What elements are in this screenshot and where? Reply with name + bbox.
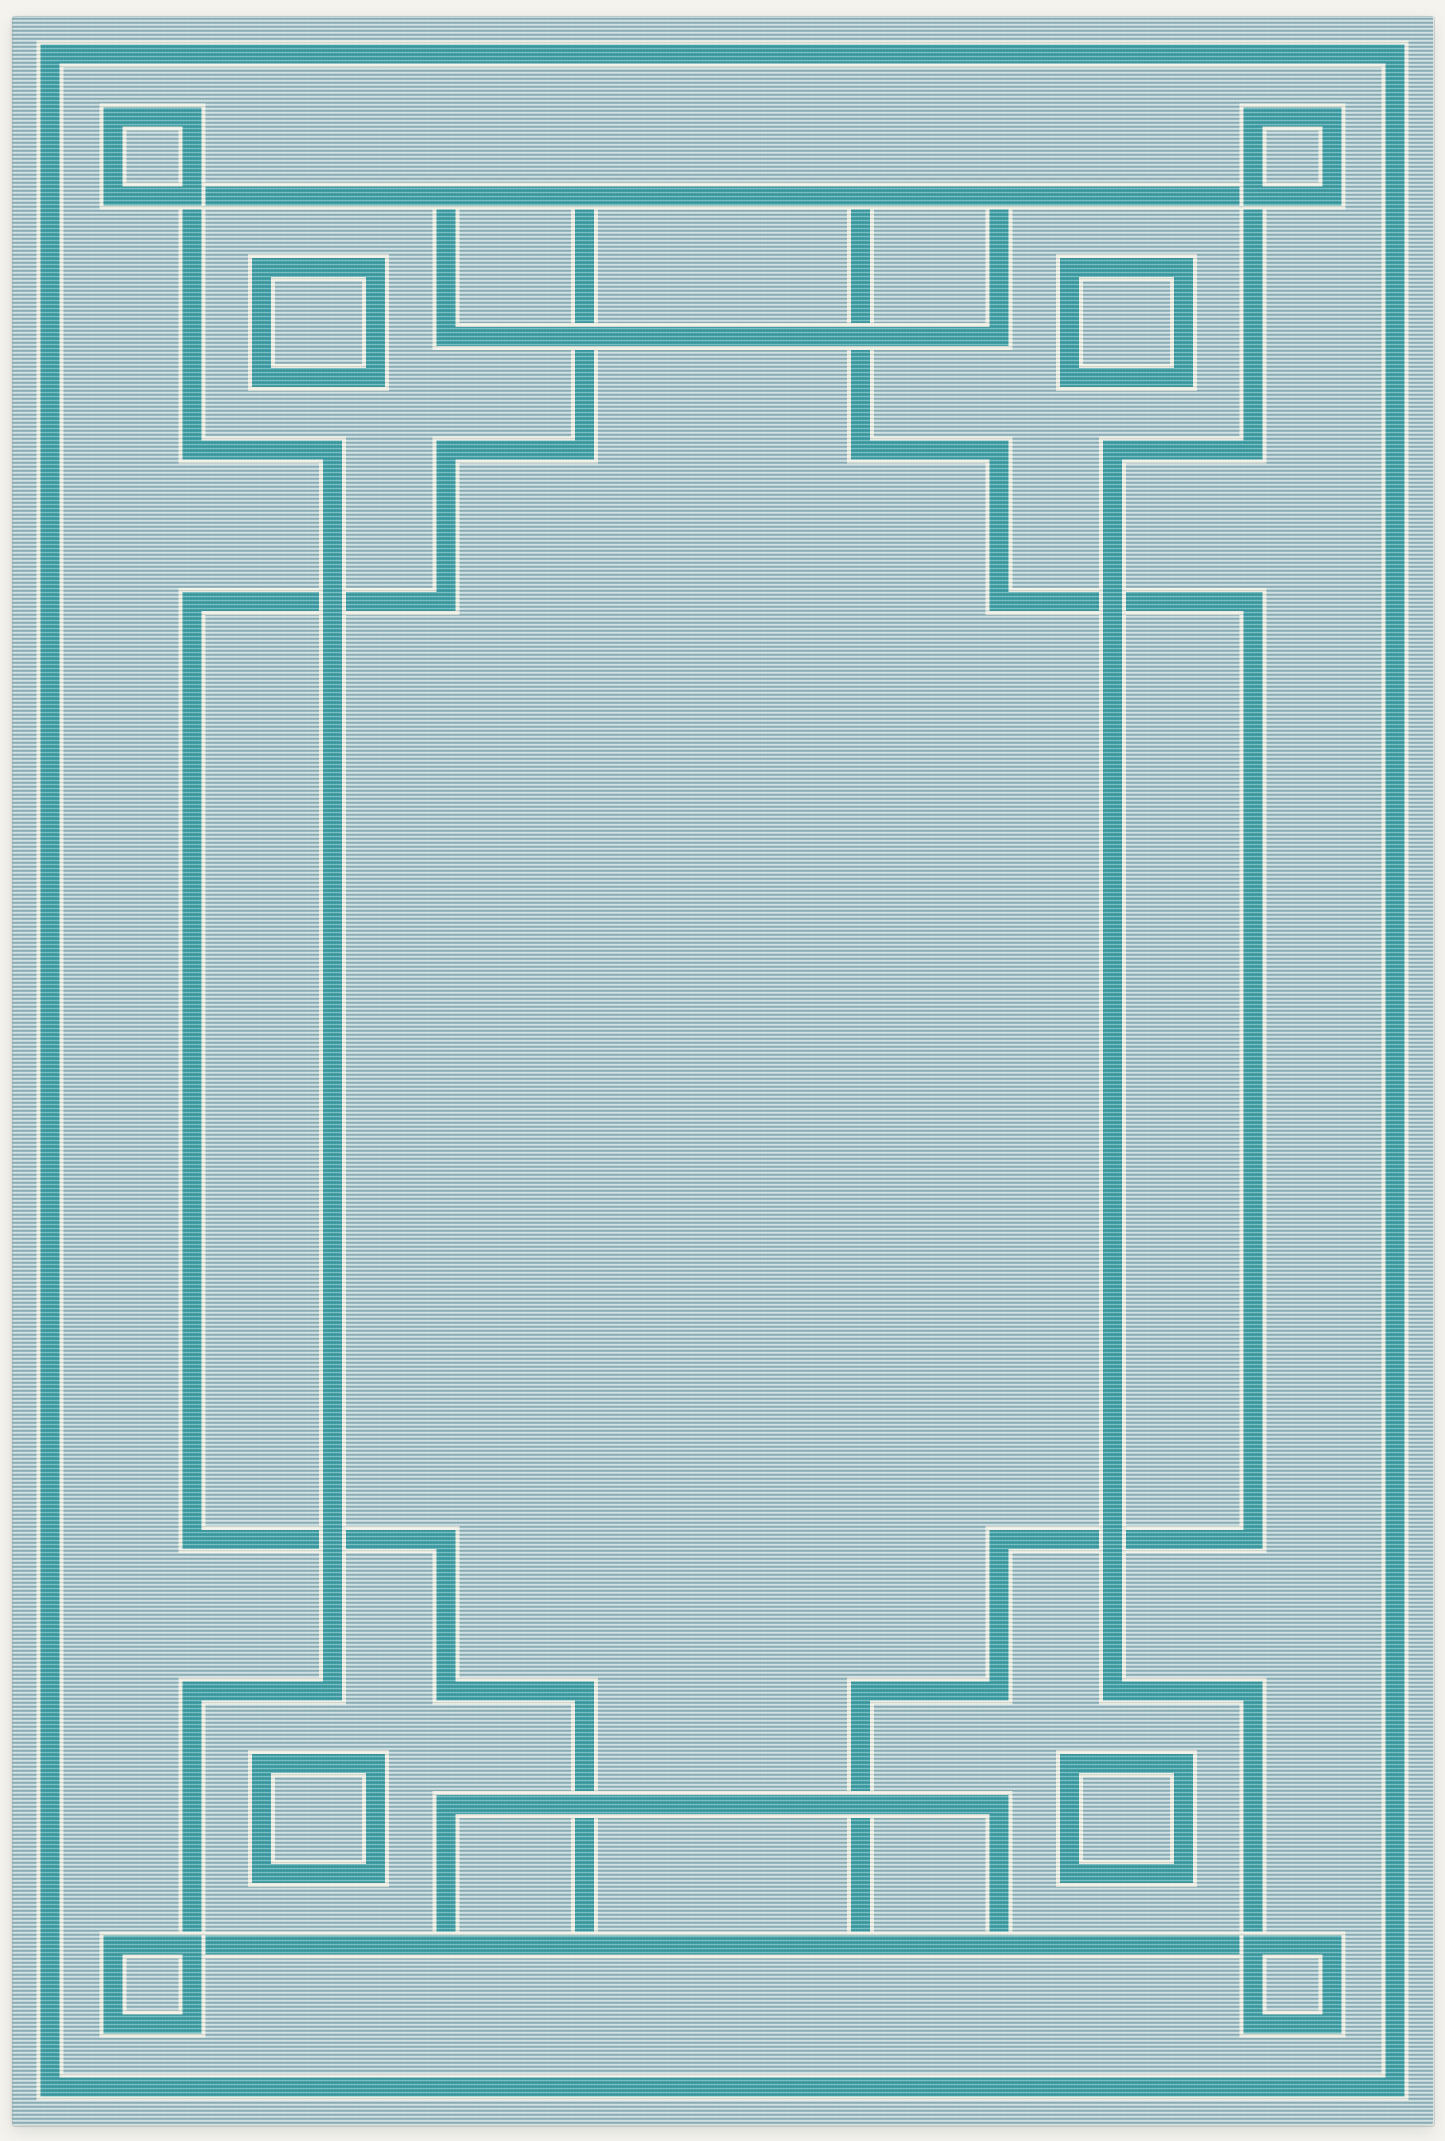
photo-background xyxy=(0,0,1445,2141)
area-rug xyxy=(12,16,1433,2125)
rug-product-photo: { "canvas": { "width": 1445, "height": 2… xyxy=(0,0,1445,2141)
